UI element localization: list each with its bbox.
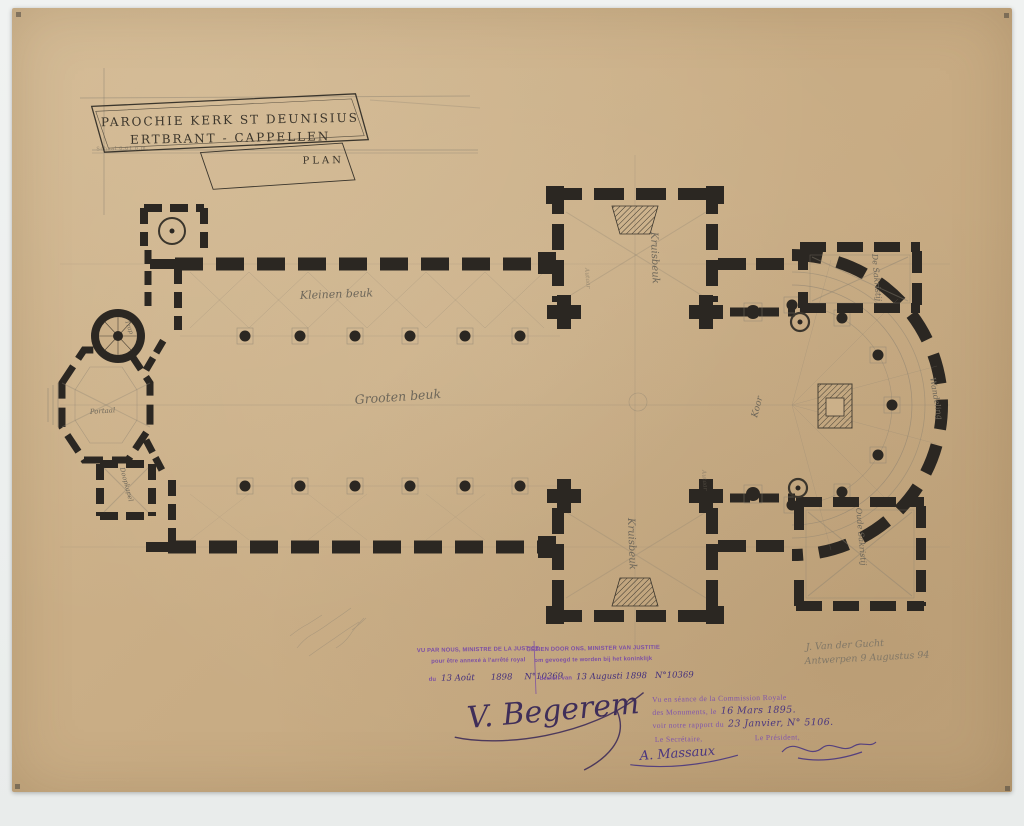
column xyxy=(295,331,306,342)
stamp-dutch-line1: GEZIEN DOOR ONS, MINISTER VAN JUSTITIE xyxy=(526,645,660,653)
stamp-commission: Vu en séance de la Commission Royale des… xyxy=(652,692,834,744)
label-portal: Portaal xyxy=(89,406,116,416)
pencil-scribbles xyxy=(290,608,366,656)
corner-pier xyxy=(706,186,724,204)
passage-pier xyxy=(746,487,760,501)
title-block: PAROCHIE KERK ST DEUNISIUS ERTBRANT - CA… xyxy=(92,94,370,192)
stair-turret-newel xyxy=(798,320,803,325)
column xyxy=(837,487,848,498)
column xyxy=(873,450,884,461)
commission-line1: Vu en séance de la Commission Royale xyxy=(652,693,787,704)
column xyxy=(295,481,306,492)
aisle-junction-pier xyxy=(538,252,556,274)
high-altar xyxy=(818,384,852,428)
label-aisle: Kleinen beuk xyxy=(299,286,374,302)
label-choir: Koor xyxy=(750,395,766,420)
stair-tower xyxy=(91,309,145,363)
minister-signature: V. Begerem xyxy=(452,686,650,781)
stair-turret-newel xyxy=(796,486,801,491)
label-nave: Grooten beuk xyxy=(354,386,441,407)
secretary-signature-text: A. Massaux xyxy=(638,744,716,764)
pencil-guide-lines xyxy=(60,68,950,655)
side-altar xyxy=(612,206,658,234)
minister-signature-text: V. Begerem xyxy=(466,686,641,736)
corner-pier xyxy=(546,606,564,624)
label-transept-north: Kruisbeuk xyxy=(648,231,661,284)
stamp-dutch: GEZIEN DOOR ONS, MINISTER VAN JUSTITIE o… xyxy=(526,644,694,683)
scale-note: Schaal 0.01 p.m. xyxy=(96,145,148,152)
title-line2: ERTBRANT - CAPPELLEN xyxy=(130,129,330,146)
passage-pier xyxy=(746,305,760,319)
floor-plan-canvas: PAROCHIE KERK ST DEUNISIUS ERTBRANT - CA… xyxy=(0,0,1024,826)
paper-corner-mark xyxy=(16,12,21,17)
crossing-centre-guide xyxy=(629,393,647,411)
stamp-french-line1: VU PAR NOUS, MINISTRE DE LA JUSTICE xyxy=(417,646,540,654)
president-label: Le Président, xyxy=(755,732,800,742)
architect-note: J. Van der Gucht Antwerpen 9 Augustus 94 xyxy=(803,636,930,668)
column xyxy=(837,313,848,324)
column xyxy=(787,300,798,311)
corner-pier xyxy=(546,186,564,204)
column xyxy=(405,331,416,342)
column xyxy=(460,331,471,342)
commission-line3: voir notre rapport du23 Janvier, N° 5106… xyxy=(652,717,833,731)
column xyxy=(887,400,898,411)
column xyxy=(240,481,251,492)
column xyxy=(515,481,526,492)
column xyxy=(405,481,416,492)
president-signature-flourish xyxy=(782,742,876,760)
aisle-bay-guides xyxy=(190,494,485,540)
secretary-signature: A. Massaux xyxy=(629,742,738,769)
signature-flourish xyxy=(798,752,862,760)
corner-pier xyxy=(706,606,724,624)
northwest-chapel xyxy=(144,208,204,306)
aisle-junction-pier xyxy=(538,536,556,558)
stamp-french-line2: pour être annexé à l'arrêté royal xyxy=(431,657,526,665)
stamp-dutch-line2: om gevoegd te worden bij het koninklijk xyxy=(534,656,653,664)
plan-label: PLAN xyxy=(303,155,345,167)
nave-columns xyxy=(237,328,528,494)
column xyxy=(350,331,361,342)
architect-note-line2: Antwerpen 9 Augustus 94 xyxy=(803,650,929,668)
paper-corner-mark xyxy=(1004,13,1009,18)
label-sacristy-north: De Sakristij xyxy=(870,252,883,302)
column xyxy=(873,350,884,361)
signature-flourish xyxy=(782,742,876,752)
title-line1: PAROCHIE KERK ST DEUNISIUS xyxy=(101,111,359,130)
paper-corner-mark xyxy=(1005,786,1010,791)
secretary-label: Le Secrétaire, xyxy=(655,734,703,744)
column xyxy=(460,481,471,492)
chapel-turret-newel xyxy=(170,229,175,234)
column xyxy=(515,331,526,342)
aisle-bay-guides xyxy=(190,272,544,328)
crossing-pier xyxy=(547,479,581,513)
side-altar xyxy=(612,578,658,606)
commission-line2: des Monuments, le16 Mars 1895. xyxy=(652,704,796,718)
label-transept-south: Kruisbeuk xyxy=(625,517,638,570)
paper-corner-mark xyxy=(15,784,20,789)
column xyxy=(240,331,251,342)
architect-note-line1: J. Van der Gucht xyxy=(804,638,885,653)
column xyxy=(350,481,361,492)
